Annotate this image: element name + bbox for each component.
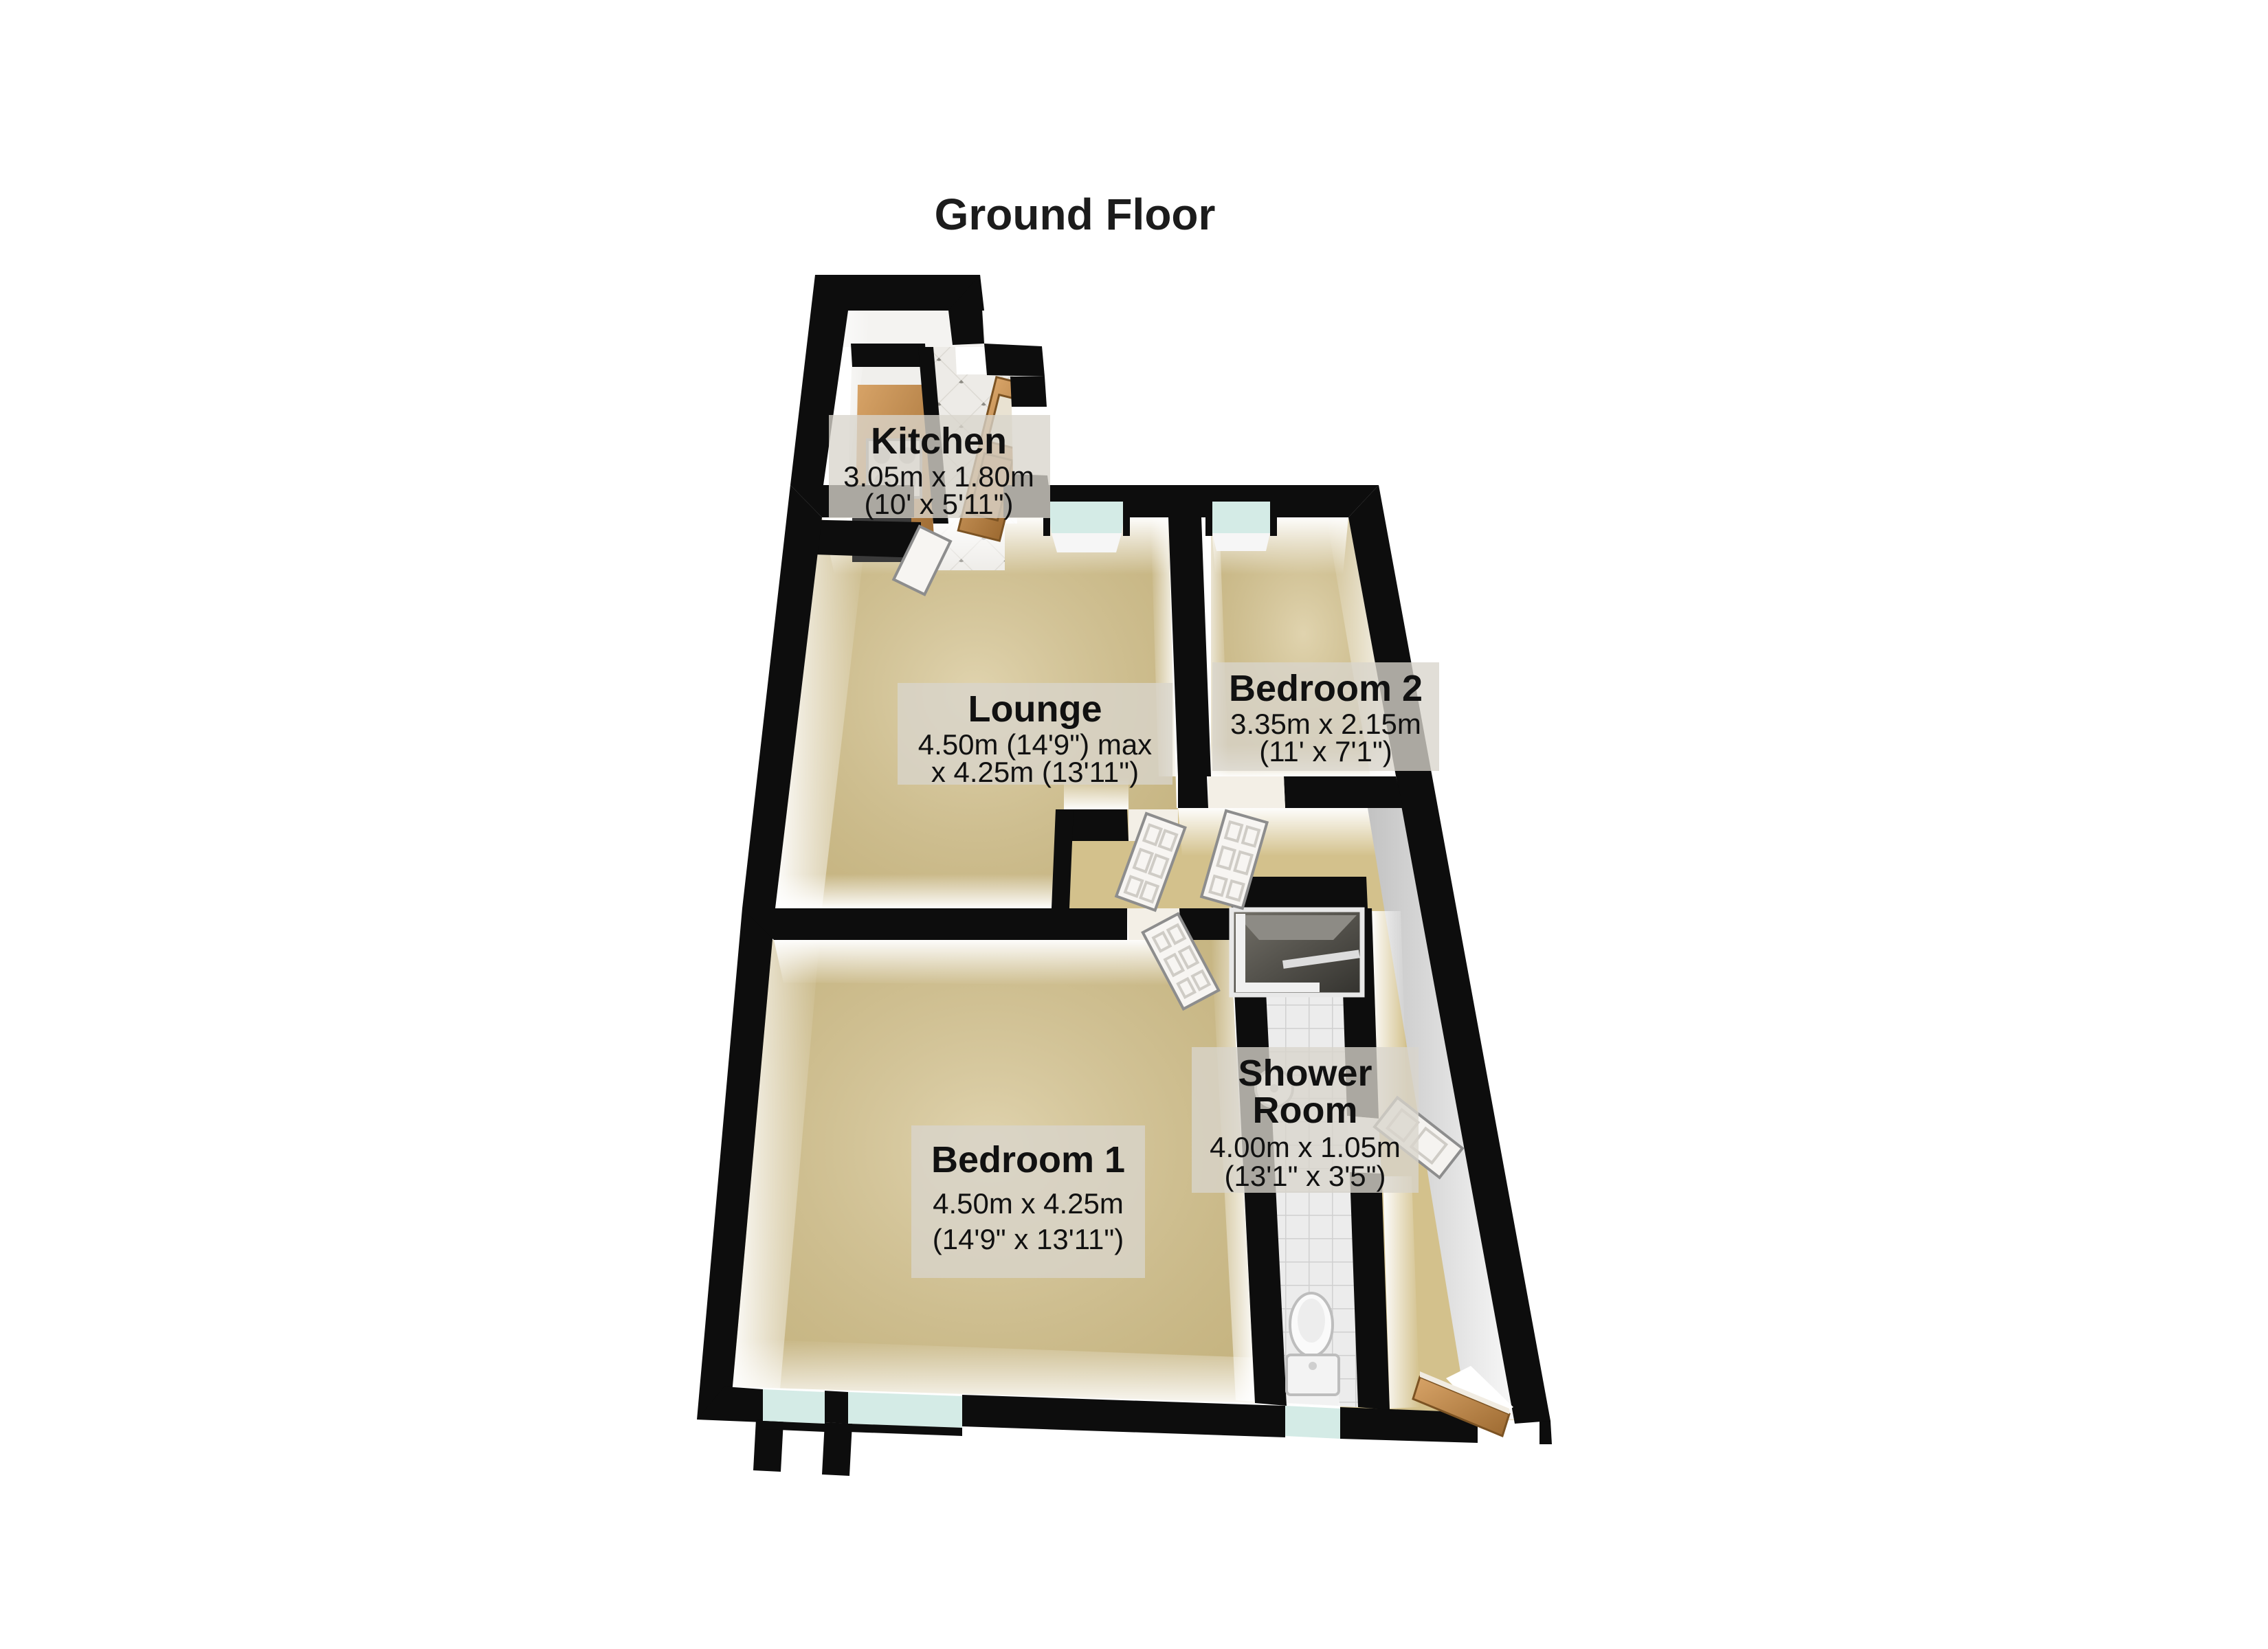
wall-main-top [1045,485,1129,502]
window-jamb [1270,500,1277,536]
room-dims: 4.00m x 1.05m [1210,1131,1401,1163]
reveal [774,940,1179,985]
floorplan-drawing: Kitchen 3.05m x 1.80m (10' x 5'11") Loun… [0,0,2268,1649]
room-name: Shower [1238,1053,1372,1094]
room-name: Kitchen [871,420,1007,462]
wall-main-top [1129,485,1207,517]
room-name: Lounge [968,688,1102,730]
room-name: Bedroom 1 [931,1139,1125,1180]
bedroom2-label: Bedroom 2 3.35m x 2.15m (11' x 7'1") [1212,662,1439,771]
doorway-gap [1208,776,1285,808]
wall-kitchen-inner-stub [851,344,926,367]
lounge-window [1043,500,1130,552]
wall-kitchen-right-a [1010,377,1047,407]
window-glass [848,1392,962,1428]
room-dims: (14'9" x 13'11") [933,1223,1124,1255]
cubicle-rail [1236,914,1245,991]
room-name: Bedroom 2 [1229,668,1423,709]
window-glass [1210,502,1273,533]
window-glass [763,1389,825,1424]
shower-room-label: Shower Room 4.00m x 1.05m (13'1" x 3'5") [1192,1047,1419,1193]
window-jamb [1123,500,1130,536]
window-glass [1285,1406,1340,1439]
window-sill [1052,533,1122,552]
window-jamb [1205,500,1212,536]
page-title: Ground Floor [935,190,1216,239]
cubicle-rail [1236,983,1320,992]
wall-bedroom2-bottom [1178,776,1208,808]
shower-cubicle [1232,910,1362,995]
bedroom2-window [1205,500,1277,551]
lounge-label: Lounge 4.50m (14'9") max x 4.25m (13'11"… [898,683,1172,788]
wall-bottom [825,1391,848,1424]
room-name: Room [1253,1090,1358,1131]
room-dims: (10' x 5'11") [865,488,1014,520]
window-sill [1212,533,1270,551]
window-glass [1047,502,1126,533]
wall-kitchen-jog [984,344,1045,377]
bedroom1-window-a [763,1389,825,1432]
wall-main-top [1207,485,1276,502]
room-dims: x 4.25m (13'11") [931,756,1139,788]
floorplan-page: Kitchen 3.05m x 1.80m (10' x 5'11") Loun… [0,0,2268,1649]
bedroom1-label: Bedroom 1 4.50m x 4.25m (14'9" x 13'11") [911,1125,1145,1278]
wall-bottom-stub [822,1422,852,1476]
wall-bedroom1-top [742,908,1127,940]
room-dims: (13'1" x 3'5") [1225,1160,1386,1192]
wall-bedroom2-bottom [1284,776,1403,808]
wall-lounge-hall [1064,809,1129,841]
kitchen-label: Kitchen 3.05m x 1.80m (10' x 5'11") [829,415,1050,520]
bedroom1-window-b [848,1392,962,1436]
room-dims: 4.50m x 4.25m [933,1187,1124,1220]
room-dims: (11' x 7'1") [1259,735,1392,767]
reveal [771,874,1064,908]
